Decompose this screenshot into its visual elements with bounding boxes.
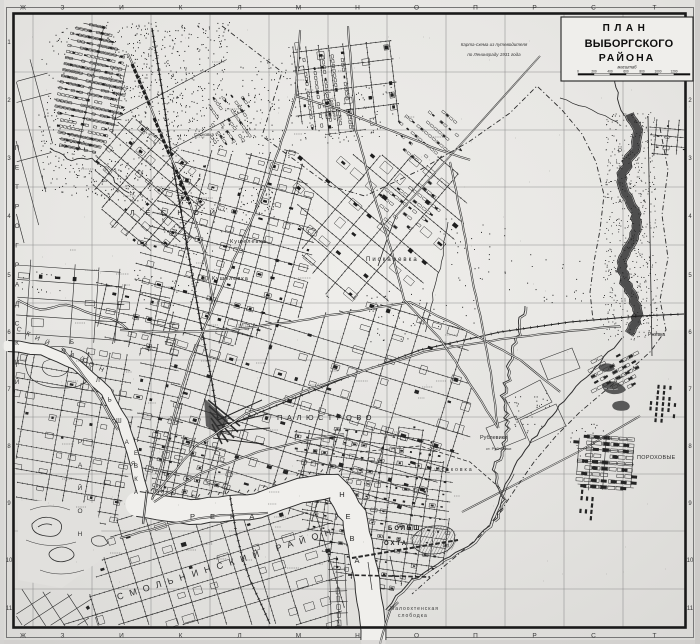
svg-text:Л: Л: [237, 5, 241, 12]
svg-text:О: О: [14, 223, 19, 230]
svg-text:800: 800: [639, 69, 645, 73]
svg-text:С: С: [591, 5, 596, 12]
svg-text:Сосновка: Сосновка: [194, 132, 214, 137]
svg-text:А: А: [15, 282, 20, 289]
svg-text:П: П: [15, 145, 20, 152]
svg-text:К: К: [179, 5, 183, 12]
svg-text:М: М: [296, 5, 301, 12]
svg-text:Т: Т: [618, 182, 621, 188]
svg-text:О: О: [618, 148, 622, 154]
svg-text:Т: Т: [15, 184, 19, 191]
svg-text:200: 200: [591, 69, 597, 73]
svg-text:Е: Е: [15, 165, 20, 172]
svg-text:м. Кушелевка: м. Кушелевка: [202, 276, 249, 282]
svg-text:0: 0: [577, 69, 579, 73]
svg-text:Д: Д: [15, 301, 20, 308]
svg-text:З: З: [61, 5, 65, 12]
svg-text:1200: 1200: [670, 69, 677, 73]
svg-text:600: 600: [623, 69, 629, 73]
svg-text:Т: Т: [653, 5, 657, 12]
svg-text:Н: Н: [355, 5, 360, 12]
svg-text:П: П: [473, 5, 478, 12]
svg-text:Р: Р: [15, 262, 19, 269]
svg-text:Г: Г: [15, 243, 19, 250]
svg-text:О: О: [414, 5, 419, 12]
svg-text:400: 400: [607, 69, 613, 73]
svg-text:РАЙОНА: РАЙОНА: [599, 51, 656, 64]
svg-text:Кушелевка: Кушелевка: [230, 239, 267, 245]
svg-text:Пискаревка: Пискаревка: [366, 257, 419, 263]
svg-text:ПЛАН: ПЛАН: [603, 23, 650, 34]
svg-text:по Ленинграду 1931 года: по Ленинграду 1931 года: [467, 52, 521, 57]
svg-text:Карта-схема из путеводителя: Карта-схема из путеводителя: [461, 42, 528, 47]
svg-text:И: И: [119, 5, 124, 12]
svg-text:Р: Р: [15, 204, 19, 211]
svg-text:Р: Р: [532, 5, 536, 12]
svg-text:ВЫБОРГСКОГО: ВЫБОРГСКОГО: [585, 38, 674, 50]
svg-text:Ж: Ж: [20, 5, 26, 12]
svg-text:1000: 1000: [654, 69, 661, 73]
svg-text:ЛЕСНОЙ: ЛЕСНОЙ: [130, 208, 226, 217]
